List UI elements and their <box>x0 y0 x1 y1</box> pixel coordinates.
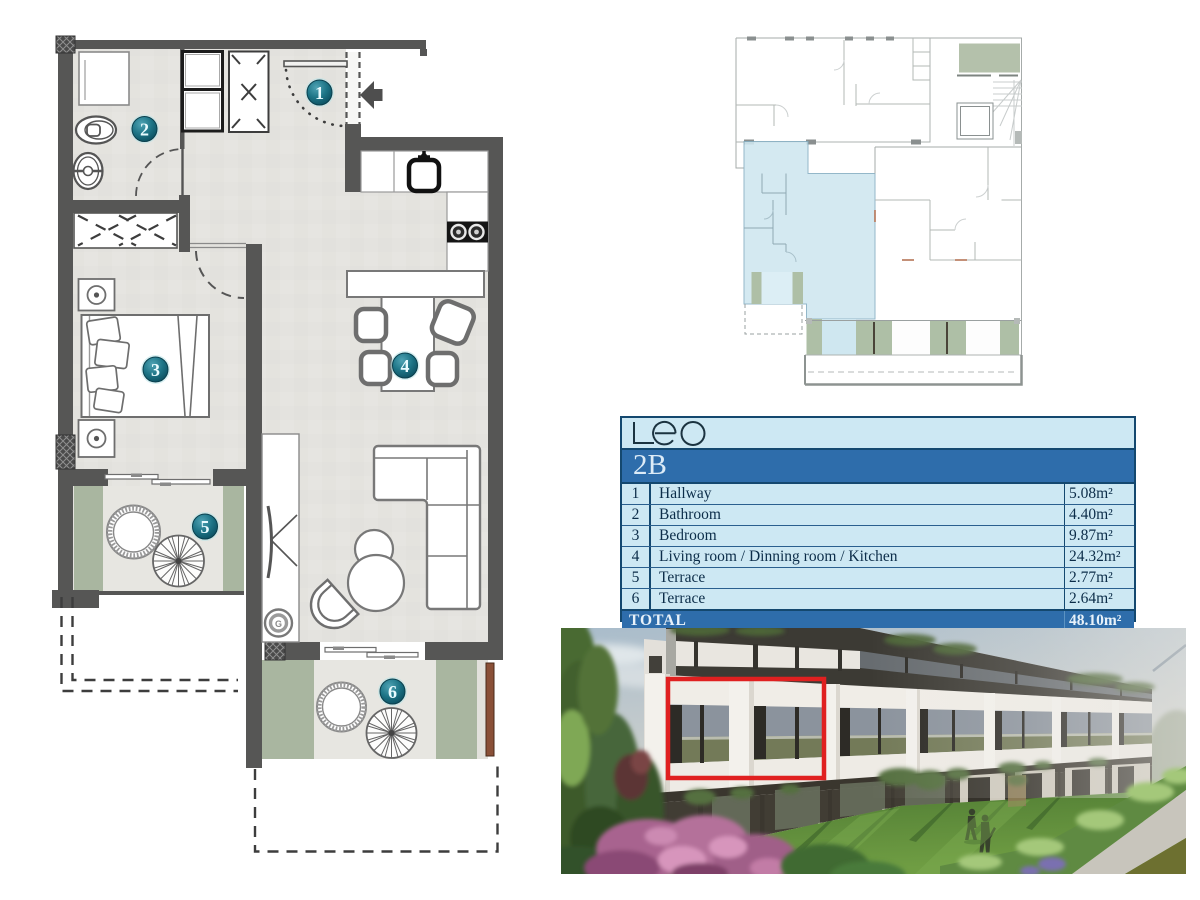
svg-text:4: 4 <box>401 356 410 376</box>
svg-text:2: 2 <box>140 120 149 140</box>
svg-text:3: 3 <box>151 360 160 380</box>
svg-text:1: 1 <box>315 83 324 103</box>
svg-text:G: G <box>275 619 282 629</box>
svg-text:6: 6 <box>388 682 397 702</box>
svg-text:5: 5 <box>201 517 210 537</box>
